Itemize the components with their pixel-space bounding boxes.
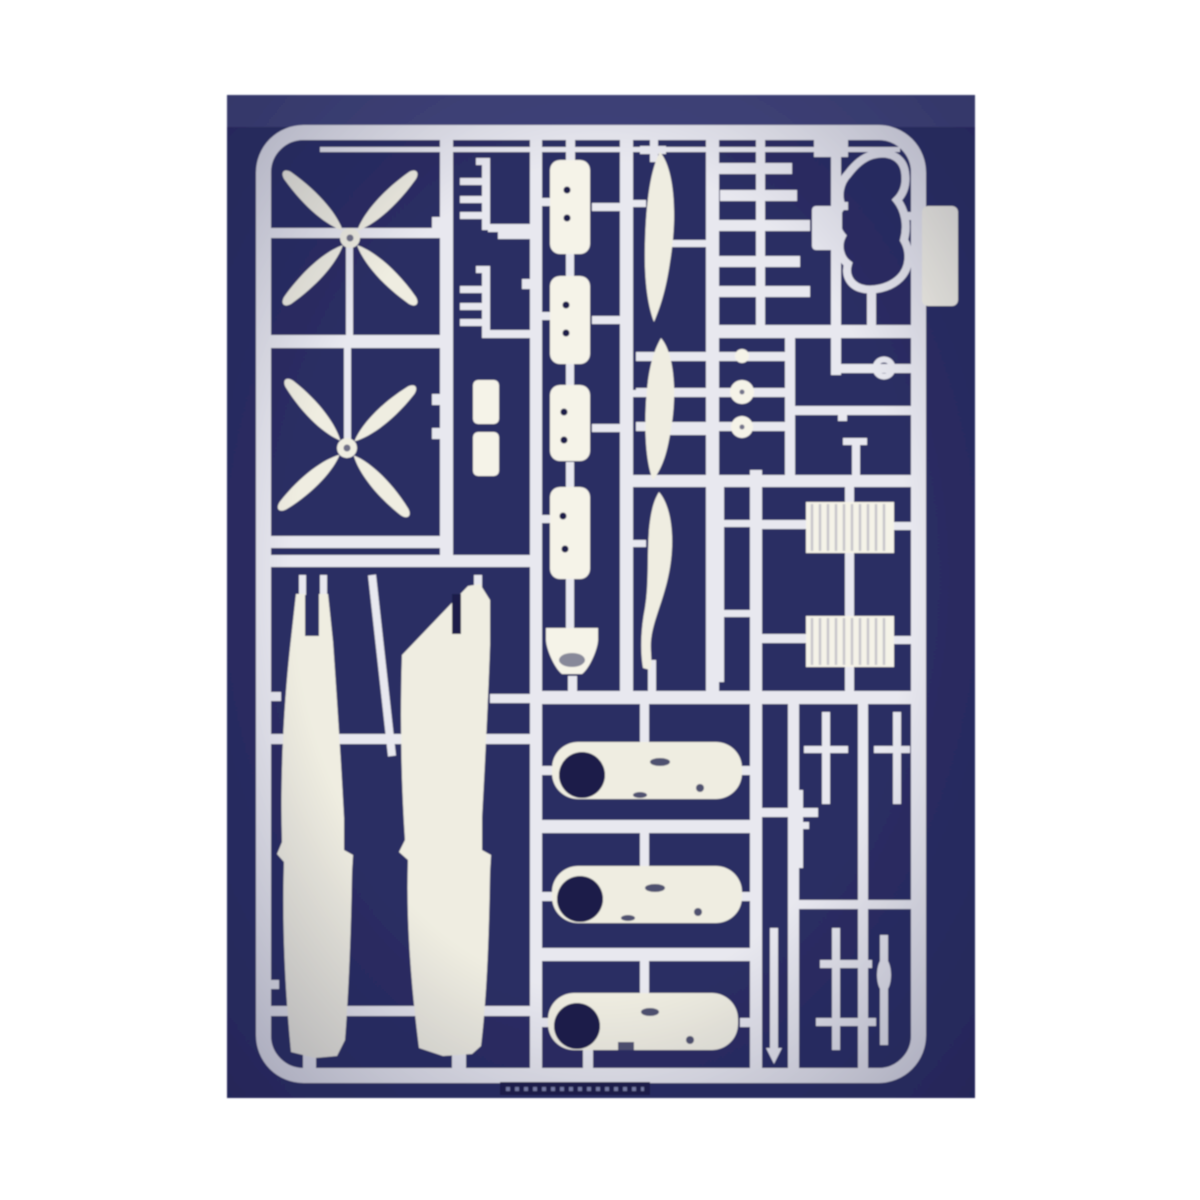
- sprue-photo: Plastic model kit sprue of white aircraf…: [0, 0, 1200, 1200]
- photo-vignette: [227, 95, 975, 1098]
- sprue-photo-canvas: Plastic model kit sprue of white aircraf…: [0, 0, 1200, 1200]
- photo-body: [227, 95, 975, 1098]
